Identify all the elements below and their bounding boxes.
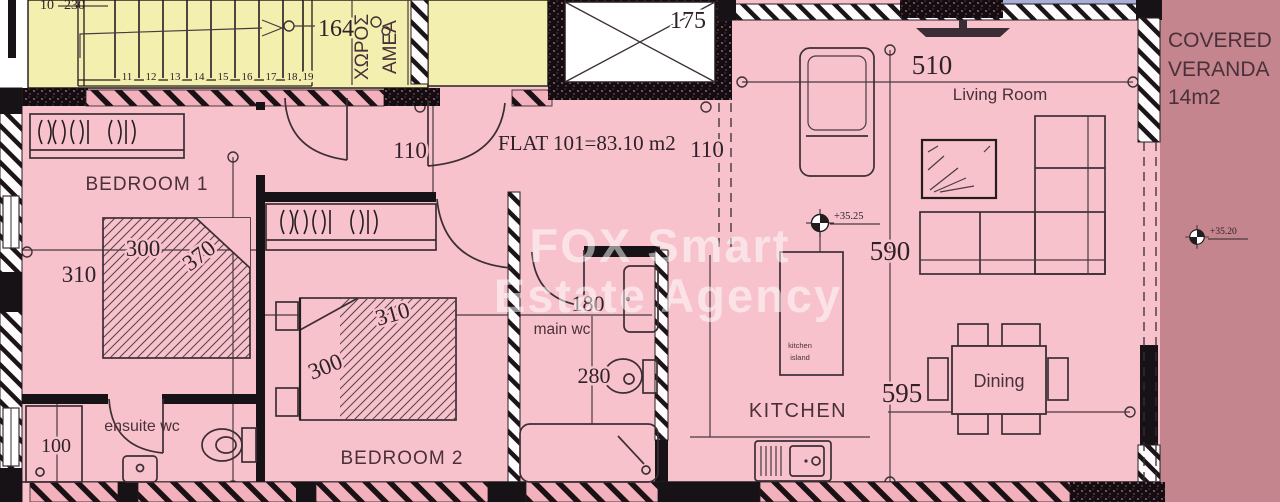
veranda-label-2: VERANDA bbox=[1168, 58, 1270, 81]
watermark-line1: FOX Smart bbox=[530, 219, 791, 272]
lobby-floor bbox=[428, 0, 548, 86]
corridor-dim-left: 110 bbox=[393, 138, 427, 163]
living-dim: 510 bbox=[912, 50, 953, 80]
wall-top-left-c bbox=[384, 88, 440, 106]
stair-step-14: 14 bbox=[194, 71, 206, 83]
elevator-dim: 175 bbox=[670, 8, 706, 34]
watermark-line2: Estate Agency bbox=[494, 269, 842, 322]
stair-top-dim: 230 bbox=[64, 0, 85, 13]
stair-step-17: 17 bbox=[266, 71, 278, 83]
veranda-label-1: COVERED bbox=[1168, 29, 1272, 52]
wall-living-top-post bbox=[718, 0, 736, 20]
kitchen-island-label-1: kitchen bbox=[788, 341, 812, 350]
window-ensuite bbox=[3, 408, 19, 466]
floor-plan: 11 12 13 14 15 16 17 18 19 10 230 164 ΧΩ… bbox=[0, 0, 1280, 502]
kitchen-island-label-2: island bbox=[790, 353, 810, 362]
kitchen-dim-width: 595 bbox=[882, 378, 923, 408]
mainwc-label: main wc bbox=[534, 321, 591, 338]
wall-bedroom1-right-a bbox=[256, 102, 265, 110]
veranda-level: +35.20 bbox=[1210, 227, 1237, 237]
corridor-dim-right: 110 bbox=[690, 137, 724, 162]
wall-top-left-b bbox=[86, 90, 384, 106]
wall-right-corner bbox=[1136, 0, 1162, 20]
stair-step-12: 12 bbox=[146, 71, 157, 83]
wall-bottom-2 bbox=[118, 482, 138, 502]
wall-bottom-1 bbox=[30, 482, 118, 502]
mainwc-dim-depth: 280 bbox=[578, 363, 611, 388]
flat-level: +35.25 bbox=[834, 211, 864, 222]
bed-bedroom2 bbox=[276, 298, 456, 420]
wall-right-solid bbox=[1140, 345, 1158, 445]
wall-bedroom1-right-b bbox=[256, 175, 265, 482]
ensuite-label: ensuite wc bbox=[104, 418, 180, 435]
window-bedroom1 bbox=[3, 196, 19, 248]
wall-bedroom2-right bbox=[508, 192, 520, 482]
wall-bottom-8 bbox=[658, 482, 760, 502]
amea-label-2: ΑΜΕΑ bbox=[380, 20, 401, 74]
dining-label: Dining bbox=[973, 371, 1024, 391]
amea-label-1: ΧΩΡΟΣ bbox=[352, 14, 373, 80]
stair-step-11: 11 bbox=[122, 71, 133, 83]
stair-step-19: 19 bbox=[303, 71, 315, 83]
wall-ensuite-top-b bbox=[162, 394, 256, 404]
wall-left-post-1 bbox=[0, 88, 22, 114]
living-label: Living Room bbox=[953, 85, 1048, 104]
flat-title: FLAT 101=83.10 m2 bbox=[498, 131, 676, 155]
stair-dim: 164 bbox=[318, 16, 354, 42]
wall-bottom-6 bbox=[488, 482, 526, 502]
stair-corner-post bbox=[8, 0, 16, 58]
wall-bottom-10 bbox=[1070, 482, 1165, 502]
ensuite-dim: 100 bbox=[41, 435, 71, 457]
stair-step-15: 15 bbox=[218, 71, 230, 83]
wall-bottom-3 bbox=[138, 482, 298, 502]
kitchen-dim-length: 590 bbox=[870, 236, 911, 266]
wall-bottom-5 bbox=[316, 482, 488, 502]
stair-step-16: 16 bbox=[242, 71, 254, 83]
bedroom1-label: BEDROOM 1 bbox=[85, 174, 208, 195]
wall-bottom-7 bbox=[526, 482, 658, 502]
watermark: FOX Smart Estate Agency bbox=[494, 219, 842, 322]
amea-wall-hatch bbox=[411, 0, 428, 84]
stair-step-13: 13 bbox=[170, 71, 182, 83]
bedroom1-dim-top: 300 bbox=[126, 236, 161, 261]
stair-step-18: 18 bbox=[287, 71, 299, 83]
bedroom2-label: BEDROOM 2 bbox=[340, 448, 463, 469]
wall-left-post-2 bbox=[0, 272, 22, 312]
wall-bottom-9 bbox=[760, 482, 1070, 502]
wall-bedroom2-top bbox=[264, 192, 436, 202]
bedroom1-dim-bottom: 310 bbox=[62, 262, 97, 287]
wall-bottom-4 bbox=[296, 482, 316, 502]
kitchen-label: KITCHEN bbox=[749, 400, 847, 422]
wall-top-left-d bbox=[512, 90, 552, 106]
wall-living-top-speck bbox=[900, 0, 1003, 18]
wall-ensuite-top-a bbox=[22, 394, 108, 404]
veranda-label-3: 14m2 bbox=[1168, 86, 1221, 109]
wall-left-post-3 bbox=[0, 468, 22, 502]
wall-right-hatch-a bbox=[1138, 18, 1160, 142]
stair-top-num: 10 bbox=[40, 0, 54, 13]
